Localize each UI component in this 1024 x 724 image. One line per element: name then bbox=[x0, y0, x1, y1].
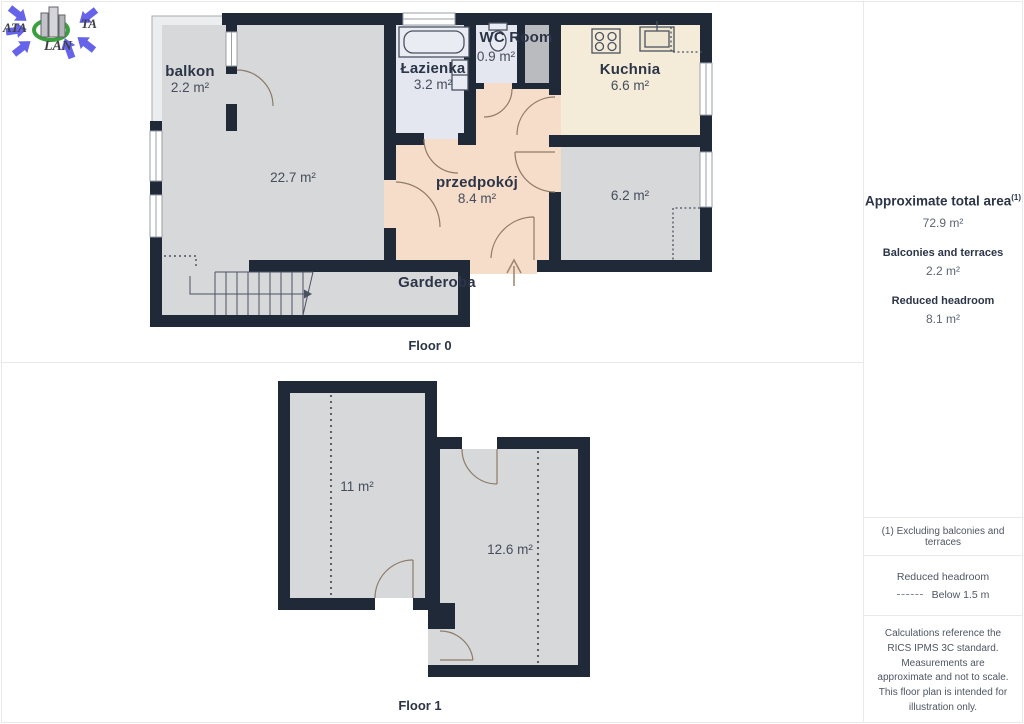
legend-value: Below 1.5 m bbox=[932, 589, 990, 601]
stove-icon bbox=[592, 29, 620, 53]
watermark-logo: ATA TA LAN bbox=[2, 0, 106, 60]
floor0-title: Floor 0 bbox=[380, 338, 480, 353]
legend-section: Reduced headroom Below 1.5 m bbox=[864, 555, 1022, 615]
floor0-panel: balkon 2.2 m² 22.7 m² Łazienka 3.2 m² WC… bbox=[0, 0, 863, 362]
entrance-floor bbox=[470, 260, 537, 274]
logo-buildings-icon bbox=[41, 7, 65, 37]
reduced-headroom-label: Reduced headroom bbox=[892, 295, 995, 307]
disclaimer-text: Calculations reference the RICS IPMS 3C … bbox=[877, 627, 1009, 716]
disclaimer-section: Calculations reference the RICS IPMS 3C … bbox=[864, 615, 1022, 722]
logo-text-lan: LAN bbox=[43, 39, 73, 54]
room11-floor bbox=[290, 393, 425, 598]
floor1-plan-drawing bbox=[0, 362, 863, 722]
footnote-marker: (1) bbox=[1011, 193, 1021, 202]
reduced-headroom-value: 8.1 m² bbox=[926, 312, 960, 326]
room-label-lazienka: Łazienka 3.2 m² bbox=[373, 60, 493, 93]
legend-title: Reduced headroom bbox=[897, 571, 989, 583]
room-label-garderoba: Garderoba bbox=[377, 274, 497, 291]
area-summary-section: Approximate total area(1) 72.9 m² Balcon… bbox=[864, 2, 1022, 517]
footnote-section: (1) Excluding balconies and terraces bbox=[864, 517, 1022, 555]
room-label-62: 6.2 m² bbox=[570, 188, 690, 204]
room-label-126: 12.6 m² bbox=[450, 542, 570, 558]
sidebar-divider bbox=[863, 2, 864, 722]
dashed-line-sample bbox=[897, 594, 923, 595]
room-label-wc: WC Room bbox=[456, 29, 576, 46]
room126-door-gap-floor bbox=[428, 629, 440, 665]
room-label-11: 11 m² bbox=[297, 479, 417, 495]
room-area-wc: 0.9 m² bbox=[436, 49, 556, 65]
logo-text-ata: ATA bbox=[2, 20, 27, 35]
floor-divider bbox=[2, 362, 863, 363]
logo-text-ta: TA bbox=[81, 16, 97, 31]
total-area-value: 72.9 m² bbox=[923, 216, 964, 230]
floor1-title: Floor 1 bbox=[370, 698, 470, 713]
room-label-living: 22.7 m² bbox=[233, 170, 353, 186]
total-area-label: Approximate total area(1) bbox=[865, 193, 1021, 209]
room-label-przedpokoj: przedpokój 8.4 m² bbox=[412, 174, 542, 207]
room-label-kuchnia: Kuchnia 6.6 m² bbox=[570, 61, 690, 94]
floor1-panel: 11 m² 12.6 m² Floor 1 bbox=[0, 362, 863, 722]
room-label-balkon: balkon 2.2 m² bbox=[130, 63, 250, 96]
balconies-label: Balconies and terraces bbox=[883, 247, 1003, 259]
footnote-text: (1) Excluding balconies and terraces bbox=[864, 526, 1022, 548]
balconies-value: 2.2 m² bbox=[926, 264, 960, 278]
floorplan-page: balkon 2.2 m² 22.7 m² Łazienka 3.2 m² WC… bbox=[0, 0, 1024, 724]
info-sidebar: Approximate total area(1) 72.9 m² Balcon… bbox=[864, 2, 1022, 722]
room62-floor bbox=[561, 147, 700, 262]
